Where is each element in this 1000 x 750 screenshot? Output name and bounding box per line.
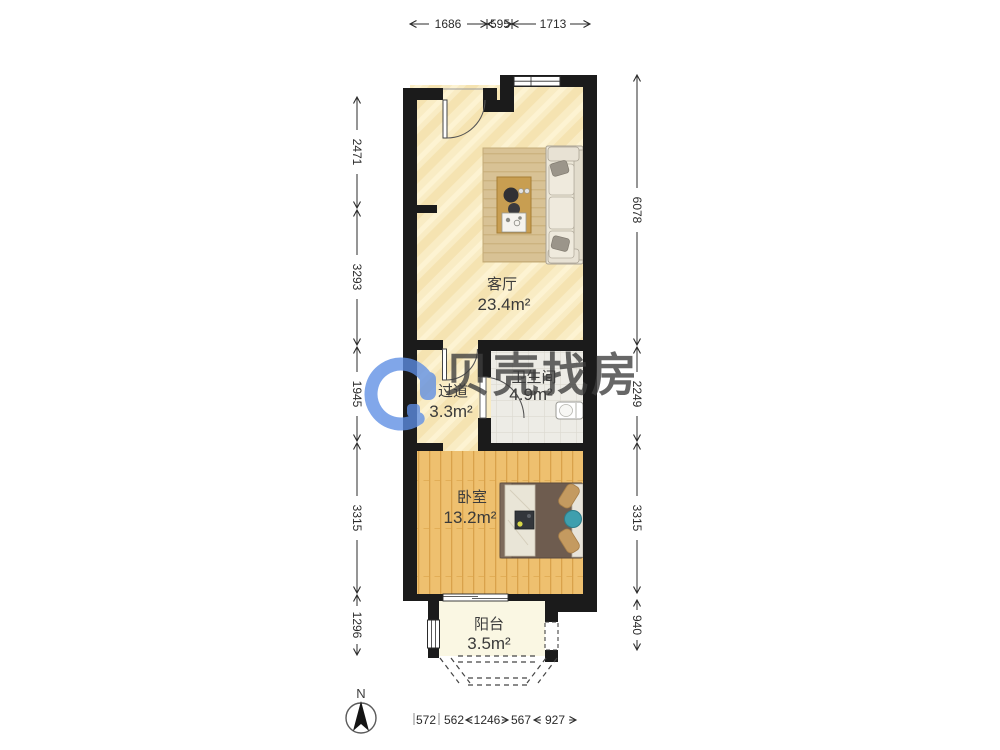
balcony-railing-dashed: [440, 656, 557, 685]
room-area-bedroom: 13.2m²: [444, 508, 497, 527]
wall-segment: [417, 205, 437, 213]
room-area-living: 23.4m²: [478, 295, 531, 314]
round-pillow: [565, 511, 582, 528]
top-window: [514, 77, 560, 87]
watermark-text: 贝壳找房: [444, 349, 640, 401]
dim-top-0: 1686: [435, 17, 462, 31]
dim-right-2: 3315: [630, 505, 644, 532]
sofa: [546, 146, 583, 264]
balcony-right-dashed-opening: [545, 622, 558, 650]
coffee-table: [497, 177, 531, 233]
dim-left-1: 3293: [350, 264, 364, 291]
floorplan-page: 客厅 23.4m² 过道 3.3m² 卫生间 4.9m² 卧室 13.2m² 阳…: [0, 0, 1000, 750]
room-label-living: 客厅: [487, 276, 517, 293]
balcony-sliding-door: [443, 594, 508, 601]
wall-segment: [428, 648, 439, 658]
dim-left-3: 3315: [350, 505, 364, 532]
north-label: N: [356, 686, 365, 701]
dim-right-0: 6078: [630, 197, 644, 224]
wall-segment: [508, 594, 597, 601]
room-area-balcony: 3.5m²: [467, 634, 511, 653]
dim-bottom-4: 927: [545, 713, 565, 727]
dim-top-2: 1713: [540, 17, 567, 31]
dim-left-2: 1945: [350, 381, 364, 408]
toilet: [556, 402, 583, 419]
dimensions-left: 2471 3293 1945 3315 1296: [350, 97, 364, 655]
room-label-balcony: 阳台: [474, 616, 504, 633]
room-area-hallway: 3.3m²: [429, 402, 473, 421]
wall-segment: [403, 594, 443, 601]
balcony-window: [428, 620, 440, 648]
living-room-furniture: [483, 146, 583, 264]
bedside-panel: [515, 511, 534, 529]
dim-bottom-1: 562: [444, 713, 464, 727]
wall-segment: [478, 443, 597, 451]
wall-segment: [417, 340, 443, 350]
dim-right-3: 940: [630, 615, 644, 635]
bedroom-furniture: [500, 482, 583, 558]
dimensions-bottom: 572 562 1246 567 927: [414, 713, 576, 727]
dim-bottom-2: 1246: [474, 713, 501, 727]
compass: N: [346, 686, 376, 733]
dim-bottom-3: 567: [511, 713, 531, 727]
dim-top-1: 595: [490, 17, 510, 31]
wall-segment: [417, 443, 443, 451]
wall-segment: [403, 88, 443, 100]
dimensions-top: 1686 595 1713: [410, 17, 590, 31]
dim-left-4: 1296: [350, 612, 364, 639]
wall-segment: [583, 75, 597, 601]
room-label-bedroom: 卧室: [457, 489, 487, 506]
wall-segment: [545, 601, 558, 622]
floorplan-svg: 客厅 23.4m² 过道 3.3m² 卫生间 4.9m² 卧室 13.2m² 阳…: [0, 0, 1000, 750]
wall-segment: [428, 601, 439, 620]
wall-segment: [403, 88, 417, 601]
dim-bottom-0: 572: [416, 713, 436, 727]
bathroom-fixtures: [556, 402, 583, 419]
bed: [500, 482, 583, 558]
dim-left-0: 2471: [350, 139, 364, 166]
